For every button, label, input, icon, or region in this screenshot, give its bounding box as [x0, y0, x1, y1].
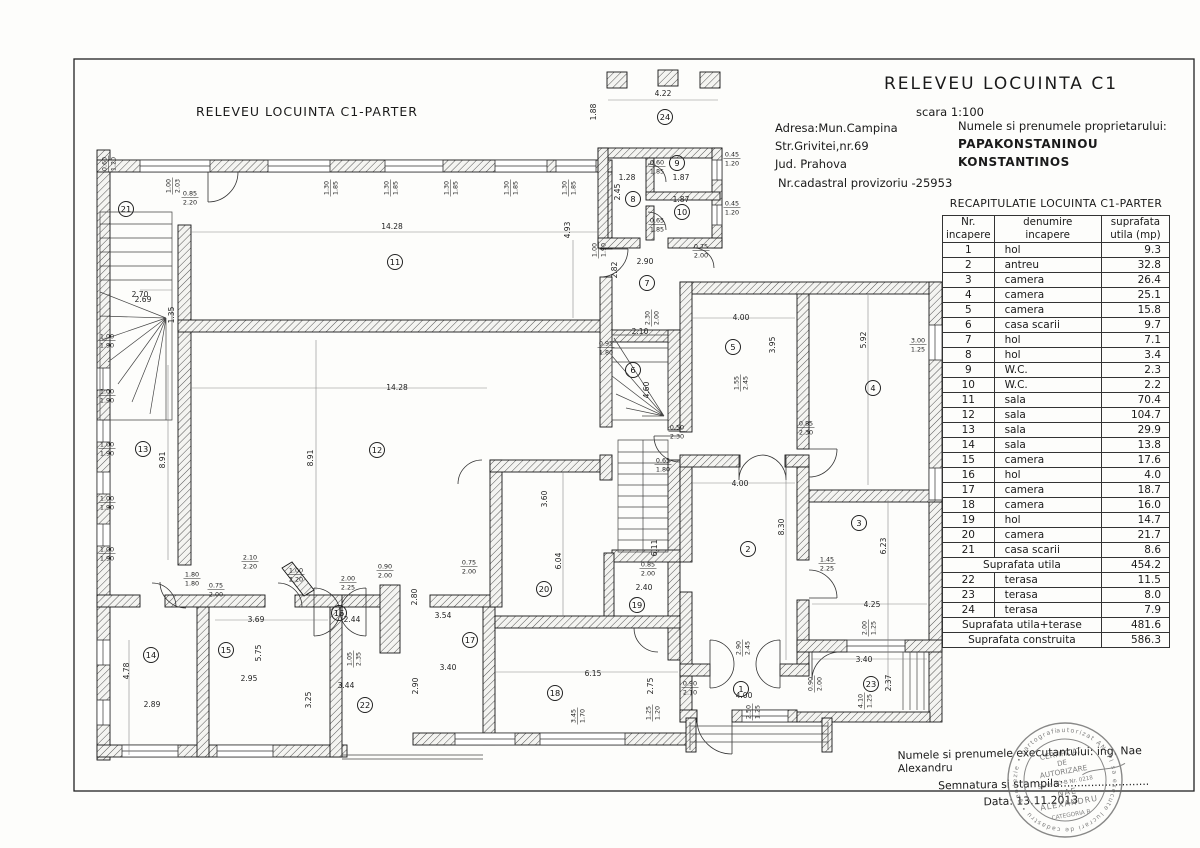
svg-text:2.82: 2.82	[610, 261, 619, 278]
svg-text:2.00: 2.00	[861, 621, 869, 635]
table-row: 18camera16.0	[943, 498, 1170, 513]
svg-text:3.69: 3.69	[248, 615, 265, 624]
room-number: 13	[136, 442, 151, 457]
svg-text:4.00: 4.00	[736, 691, 753, 700]
svg-text:2.75: 2.75	[646, 677, 655, 694]
svg-text:1.00: 1.00	[165, 179, 173, 193]
svg-text:2.89: 2.89	[144, 700, 161, 709]
table-row: 21casa scarii8.6	[943, 543, 1170, 558]
svg-text:2.03: 2.03	[174, 179, 182, 193]
svg-text:2.69: 2.69	[135, 295, 152, 304]
svg-text:9: 9	[674, 158, 679, 168]
dimension-label: 0.902.10	[682, 680, 699, 697]
svg-text:5.92: 5.92	[859, 331, 868, 348]
dimension-label: 2.102.20	[242, 554, 259, 571]
dimension-label: 2.95	[241, 674, 258, 683]
room-number: 23	[864, 677, 879, 692]
table-row: 9W.C.2.3	[943, 363, 1170, 378]
svg-text:1.30: 1.30	[323, 181, 331, 195]
svg-text:1.30: 1.30	[443, 181, 451, 195]
recap-table-block: RECAPITULATIE LOCUINTA C1-PARTER Nr. inc…	[942, 197, 1170, 648]
dimension-label: 3.25	[304, 691, 313, 708]
summary-row: Suprafata utila454.2	[943, 558, 1170, 573]
room-number: 5	[726, 340, 741, 355]
room-number: 2	[741, 542, 756, 557]
table-row: 6casa scarii9.7	[943, 318, 1170, 333]
svg-text:2.00: 2.00	[694, 252, 708, 260]
dimension-label: 1.001.90	[591, 242, 608, 259]
svg-text:14: 14	[146, 650, 156, 660]
svg-text:1.00: 1.00	[100, 388, 114, 396]
dimension-label: 2.902.45	[735, 640, 752, 657]
dimension-label: 2.45	[613, 183, 622, 200]
svg-text:1.30: 1.30	[383, 181, 391, 195]
svg-text:1.25: 1.25	[754, 705, 762, 719]
svg-text:2.00: 2.00	[462, 568, 476, 576]
table-row: 12sala104.7	[943, 408, 1170, 423]
dimension-label: 1.001.90	[99, 388, 116, 405]
dimension-label: 14.28	[386, 383, 408, 392]
svg-text:1.20: 1.20	[725, 160, 739, 168]
dimension-label: 3.60	[540, 490, 549, 507]
svg-text:1.87: 1.87	[673, 173, 690, 182]
dimension-label: 1.001.90	[99, 441, 116, 458]
dimension-label: 2.302.00	[644, 310, 661, 327]
svg-text:0.85: 0.85	[799, 420, 813, 428]
dimension-label: 0.752.00	[693, 243, 710, 260]
dimension-label: 3.40	[440, 663, 457, 672]
svg-text:1.00: 1.00	[100, 495, 114, 503]
room-number: 22	[358, 698, 373, 713]
dimension-label: 0.502.30	[669, 424, 686, 441]
dimension-label: 6.04	[554, 552, 563, 569]
address-line: Str.Grivitei,nr.69	[775, 137, 898, 155]
svg-text:0.85: 0.85	[183, 190, 197, 198]
svg-text:1.87: 1.87	[673, 195, 690, 204]
room-number: 20	[537, 582, 552, 597]
room-number: 6	[626, 363, 641, 378]
terrace-steps	[903, 652, 924, 710]
svg-text:1.30: 1.30	[561, 181, 569, 195]
dimension-label: 14.28	[381, 222, 403, 231]
recap-table: Nr. incapere denumire incapere suprafata…	[942, 215, 1170, 648]
summary-row: Suprafata construita586.3	[943, 633, 1170, 648]
svg-text:2.45: 2.45	[742, 376, 750, 390]
dimension-label: 4.93	[563, 221, 572, 238]
svg-text:1.00: 1.00	[289, 567, 303, 575]
svg-text:8.30: 8.30	[777, 518, 786, 535]
dimension-label: 6.23	[879, 537, 888, 554]
table-row: 16hol4.0	[943, 468, 1170, 483]
dimension-label: 2.75	[646, 677, 655, 694]
stamp-line: NAE	[1057, 786, 1078, 798]
dimension-label: 3.54	[435, 611, 452, 620]
svg-text:0.75: 0.75	[694, 243, 708, 251]
table-row: 5camera15.8	[943, 303, 1170, 318]
dimension-label: 4.78	[122, 662, 131, 679]
svg-text:4.25: 4.25	[864, 600, 881, 609]
table-row: 23terasa8.0	[943, 588, 1170, 603]
dimension-label: 2.501.25	[745, 704, 762, 721]
svg-text:0.85: 0.85	[641, 561, 655, 569]
room-number: 10	[675, 205, 690, 220]
dimension-label: 4.60	[642, 381, 651, 398]
svg-text:4.60: 4.60	[642, 381, 651, 398]
dimension-label: 0.651.85	[649, 217, 666, 234]
svg-text:2.30: 2.30	[670, 433, 684, 441]
svg-text:2.50: 2.50	[745, 705, 753, 719]
svg-text:2.20: 2.20	[183, 199, 197, 207]
dimension-label: 0.852.30	[798, 420, 815, 437]
porch-steps	[690, 722, 828, 750]
dimension-label: 3.451.70	[570, 708, 587, 725]
room-number: 9	[670, 156, 685, 171]
dimension-label: 1.301.85	[443, 180, 460, 197]
dimension-label: 1.052.35	[346, 651, 363, 668]
svg-text:1.90: 1.90	[100, 450, 114, 458]
svg-text:2.95: 2.95	[241, 674, 258, 683]
room-number: 19	[630, 598, 645, 613]
dimension-label: 1.35	[167, 306, 176, 323]
table-row: 17camera18.7	[943, 483, 1170, 498]
svg-text:0.75: 0.75	[209, 582, 223, 590]
svg-text:2.80: 2.80	[410, 588, 419, 605]
svg-text:1.85: 1.85	[452, 181, 460, 195]
dimension-label: 2.37	[884, 674, 893, 691]
svg-text:12: 12	[372, 445, 382, 455]
recap-header-row: Nr. incapere denumire incapere suprafata…	[943, 216, 1170, 243]
svg-text:2.00: 2.00	[378, 572, 392, 580]
svg-text:0.90: 0.90	[378, 563, 392, 571]
scanned-survey-sheet: 1234567891011121314151617181920212223241…	[0, 0, 1200, 848]
dimension-label: 0.601.20	[101, 156, 118, 173]
dimension-label: 1.452.25	[819, 556, 836, 573]
svg-text:1.00: 1.00	[100, 546, 114, 554]
table-row: 15camera17.6	[943, 453, 1170, 468]
svg-text:1.20: 1.20	[654, 706, 662, 720]
recap-table-body: 1hol9.32antreu32.83camera26.44camera25.1…	[943, 243, 1170, 648]
svg-text:13: 13	[138, 444, 148, 454]
svg-text:4.00: 4.00	[733, 313, 750, 322]
svg-text:3.00: 3.00	[911, 337, 925, 345]
svg-text:8: 8	[630, 194, 635, 204]
svg-text:1.00: 1.00	[100, 333, 114, 341]
svg-text:16: 16	[334, 608, 344, 618]
svg-text:3.45: 3.45	[570, 709, 578, 723]
col-header-nr: Nr. incapere	[943, 216, 995, 243]
svg-text:0.75: 0.75	[462, 559, 476, 567]
dimension-label: 3.40	[856, 655, 873, 664]
svg-text:2.00: 2.00	[816, 677, 824, 691]
dimension-label: 2.40	[636, 583, 653, 592]
svg-text:1.28: 1.28	[619, 173, 636, 182]
dimension-label: 0.651.80	[655, 457, 672, 474]
dimension-label: 1.001.90	[99, 546, 116, 563]
room-number: 3	[852, 516, 867, 531]
svg-text:2.20: 2.20	[243, 563, 257, 571]
svg-text:3.40: 3.40	[856, 655, 873, 664]
svg-text:6.23: 6.23	[879, 537, 888, 554]
dimension-label: 8.30	[777, 518, 786, 535]
svg-text:1.80: 1.80	[185, 571, 199, 579]
table-row: 14sala13.8	[943, 438, 1170, 453]
owner-name: PAPAKONSTANINOU	[958, 137, 1098, 151]
svg-text:2.00: 2.00	[209, 591, 223, 599]
room-number: 14	[144, 648, 159, 663]
dimension-label: 6.15	[585, 669, 602, 678]
svg-text:1.85: 1.85	[512, 181, 520, 195]
dimension-label: 1.301.85	[561, 180, 578, 197]
svg-text:2.20: 2.20	[289, 576, 303, 584]
table-row: 20camera21.7	[943, 528, 1170, 543]
svg-text:0.45: 0.45	[725, 151, 739, 159]
svg-text:2.00: 2.00	[641, 570, 655, 578]
room-number: 8	[626, 192, 641, 207]
dimension-label: 3.001.25	[910, 337, 927, 354]
walls	[97, 70, 942, 760]
svg-text:2.25: 2.25	[820, 565, 834, 573]
dimension-label: 6.11	[650, 539, 659, 556]
svg-text:4: 4	[870, 383, 875, 393]
svg-text:8.91: 8.91	[158, 451, 167, 468]
svg-text:1.90: 1.90	[100, 504, 114, 512]
dimension-label: 2.82	[610, 261, 619, 278]
table-row: 11sala70.4	[943, 393, 1170, 408]
room-number: 15	[219, 643, 234, 658]
svg-text:1.25: 1.25	[911, 346, 925, 354]
svg-text:2.90: 2.90	[637, 257, 654, 266]
table-row: 1hol9.3	[943, 243, 1170, 258]
room-number: 17	[463, 633, 478, 648]
svg-text:1.85: 1.85	[570, 181, 578, 195]
col-header-area: suprafata utila (mp)	[1101, 216, 1169, 243]
dimension-label: 1.251.20	[645, 705, 662, 722]
dimension-label: 1.301.85	[383, 180, 400, 197]
svg-text:2.40: 2.40	[636, 583, 653, 592]
dimension-label: 2.89	[144, 700, 161, 709]
svg-text:24: 24	[660, 112, 670, 122]
svg-text:1.90: 1.90	[100, 555, 114, 563]
svg-text:21: 21	[121, 204, 131, 214]
svg-text:1.00: 1.00	[591, 243, 599, 257]
svg-text:0.90: 0.90	[807, 677, 815, 691]
svg-text:3.44: 3.44	[338, 681, 355, 690]
owner-name: KONSTANTINOS	[958, 155, 1070, 169]
svg-text:18: 18	[550, 688, 560, 698]
svg-text:2.45: 2.45	[613, 183, 622, 200]
svg-text:14.28: 14.28	[386, 383, 408, 392]
dimension-label: 0.752.00	[461, 559, 478, 576]
svg-text:2.90: 2.90	[735, 641, 743, 655]
svg-text:2.44: 2.44	[344, 615, 361, 624]
svg-text:19: 19	[632, 600, 642, 610]
dimension-label: 0.601.85	[649, 159, 666, 176]
svg-text:2: 2	[745, 544, 750, 554]
svg-text:8.91: 8.91	[306, 449, 315, 466]
svg-text:1.20: 1.20	[725, 209, 739, 217]
dimension-label: 1.87	[673, 173, 690, 182]
svg-text:6.04: 6.04	[554, 552, 563, 569]
room-number: 24	[658, 110, 673, 125]
svg-text:1.05: 1.05	[346, 652, 354, 666]
svg-text:2.37: 2.37	[884, 674, 893, 691]
svg-text:1.85: 1.85	[650, 168, 664, 176]
recap-table-title: RECAPITULATIE LOCUINTA C1-PARTER	[942, 197, 1170, 210]
table-row: 2antreu32.8	[943, 258, 1170, 273]
svg-text:15: 15	[221, 645, 231, 655]
owner-block: Numele si prenumele proprietarului: PAPA…	[958, 117, 1167, 171]
svg-text:3.60: 3.60	[540, 490, 549, 507]
svg-text:0.60: 0.60	[101, 157, 109, 171]
table-row: 10W.C.2.2	[943, 378, 1170, 393]
svg-text:1.80: 1.80	[599, 349, 613, 357]
room-number: 18	[548, 686, 563, 701]
dimension-label: 1.301.85	[323, 180, 340, 197]
svg-text:4.78: 4.78	[122, 662, 131, 679]
svg-text:0.65: 0.65	[650, 217, 664, 225]
dimension-label: 2.69	[135, 295, 152, 304]
svg-text:3: 3	[856, 518, 861, 528]
dimension-label: 4.101.25	[857, 693, 874, 710]
svg-text:10: 10	[677, 207, 687, 217]
svg-text:1.90: 1.90	[100, 342, 114, 350]
svg-text:2.90: 2.90	[411, 677, 420, 694]
round-stamp: autorizat ANCPI sa execute lucrari de ca…	[981, 700, 1148, 848]
dimension-label: 5.75	[254, 644, 263, 661]
svg-text:5.75: 5.75	[254, 644, 263, 661]
svg-text:1.70: 1.70	[579, 709, 587, 723]
svg-text:2.10: 2.10	[683, 689, 697, 697]
summary-row: Suprafata utila+terase481.6	[943, 618, 1170, 633]
svg-text:17: 17	[465, 635, 475, 645]
dimension-label: 3.69	[248, 615, 265, 624]
address-line: Jud. Prahova	[775, 155, 898, 173]
svg-text:0.90: 0.90	[683, 680, 697, 688]
svg-text:0.50: 0.50	[670, 424, 684, 432]
room-number: 11	[388, 255, 403, 270]
table-row: 13sala29.9	[943, 423, 1170, 438]
svg-text:7: 7	[644, 278, 649, 288]
svg-text:1.80: 1.80	[185, 580, 199, 588]
dimension-label: 1.001.90	[99, 495, 116, 512]
dimension-label: 3.44	[338, 681, 355, 690]
svg-text:4.22: 4.22	[655, 89, 672, 98]
room-number: 12	[370, 443, 385, 458]
dimension-label: 0.902.00	[807, 676, 824, 693]
dimension-label: 2.90	[411, 677, 420, 694]
table-row: 19hol14.7	[943, 513, 1170, 528]
svg-text:4.93: 4.93	[563, 221, 572, 238]
address-block: Adresa:Mun.Campina Str.Grivitei,nr.69 Ju…	[775, 119, 898, 173]
dimension-label: 0.951.80	[598, 340, 615, 357]
svg-text:20: 20	[539, 584, 549, 594]
svg-text:2.25: 2.25	[341, 584, 355, 592]
dimension-label: 0.852.20	[182, 190, 199, 207]
dimension-label: 5.92	[859, 331, 868, 348]
svg-text:0.45: 0.45	[725, 200, 739, 208]
svg-text:2.45: 2.45	[744, 641, 752, 655]
table-row: 4camera25.1	[943, 288, 1170, 303]
svg-text:2.35: 2.35	[355, 652, 363, 666]
svg-text:0.60: 0.60	[650, 159, 664, 167]
svg-text:1.45: 1.45	[820, 556, 834, 564]
main-title: RELEVEU LOCUINTA C1	[836, 74, 1166, 94]
svg-text:6: 6	[630, 365, 635, 375]
col-header-name: denumire incapere	[994, 216, 1101, 243]
dimension-label: 4.22	[655, 89, 672, 98]
svg-text:1.85: 1.85	[650, 226, 664, 234]
dimension-label: 0.451.20	[724, 200, 741, 217]
svg-text:0.95: 0.95	[599, 340, 613, 348]
cadastral-number: Nr.cadastral provizoriu -25953	[778, 176, 952, 190]
dimension-label: 3.95	[768, 336, 777, 353]
dimension-label: 8.91	[158, 451, 167, 468]
svg-text:22: 22	[360, 700, 370, 710]
svg-text:4.10: 4.10	[857, 694, 865, 708]
owner-label: Numele si prenumele proprietarului:	[958, 117, 1167, 135]
address-line: Adresa:Mun.Campina	[775, 119, 898, 137]
table-row: 8hol3.4	[943, 348, 1170, 363]
dimension-label: 4.00	[732, 479, 749, 488]
svg-text:1.85: 1.85	[332, 181, 340, 195]
svg-text:1.88: 1.88	[589, 103, 598, 120]
table-row: 3camera26.4	[943, 273, 1170, 288]
dimension-label: 1.552.45	[733, 375, 750, 392]
dimension-label: 0.451.20	[724, 151, 741, 168]
stamp-line: CATEGORIA B	[1051, 809, 1091, 822]
table-row: 7hol7.1	[943, 333, 1170, 348]
svg-text:2.30: 2.30	[644, 311, 652, 325]
dimension-label: 1.28	[619, 173, 636, 182]
dimension-label: 1.87	[673, 195, 690, 204]
svg-text:3.40: 3.40	[440, 663, 457, 672]
dimension-label: 2.44	[344, 615, 361, 624]
svg-text:2.00: 2.00	[341, 575, 355, 583]
dimension-label: 4.00	[736, 691, 753, 700]
svg-text:1.25: 1.25	[870, 621, 878, 635]
svg-text:6.15: 6.15	[585, 669, 602, 678]
svg-text:4.00: 4.00	[732, 479, 749, 488]
dimension-label: 1.002.03	[165, 178, 182, 195]
table-row: 22terasa11.5	[943, 573, 1170, 588]
dimension-label: 2.10	[632, 327, 649, 336]
svg-text:1.00: 1.00	[100, 441, 114, 449]
svg-text:23: 23	[866, 679, 876, 689]
svg-text:3.95: 3.95	[768, 336, 777, 353]
dimension-label: 0.902.00	[377, 563, 394, 580]
svg-text:1.85: 1.85	[392, 181, 400, 195]
dimension-label: 1.88	[589, 103, 598, 120]
svg-text:2.10: 2.10	[243, 554, 257, 562]
svg-text:1.55: 1.55	[733, 376, 741, 390]
svg-text:1.80: 1.80	[656, 466, 670, 474]
dimension-label: 2.002.25	[340, 575, 357, 592]
room-number: 7	[640, 276, 655, 291]
svg-text:1.90: 1.90	[100, 397, 114, 405]
svg-text:0.65: 0.65	[656, 457, 670, 465]
dimension-label: 1.002.20	[288, 567, 305, 584]
svg-text:6.11: 6.11	[650, 539, 659, 556]
svg-text:1.25: 1.25	[645, 706, 653, 720]
svg-text:2.00: 2.00	[653, 311, 661, 325]
svg-text:2.30: 2.30	[799, 429, 813, 437]
svg-text:2.10: 2.10	[632, 327, 649, 336]
dimension-label: 4.00	[733, 313, 750, 322]
svg-text:3.25: 3.25	[304, 691, 313, 708]
svg-text:1.90: 1.90	[600, 243, 608, 257]
svg-text:5: 5	[730, 342, 735, 352]
svg-text:1.25: 1.25	[866, 694, 874, 708]
